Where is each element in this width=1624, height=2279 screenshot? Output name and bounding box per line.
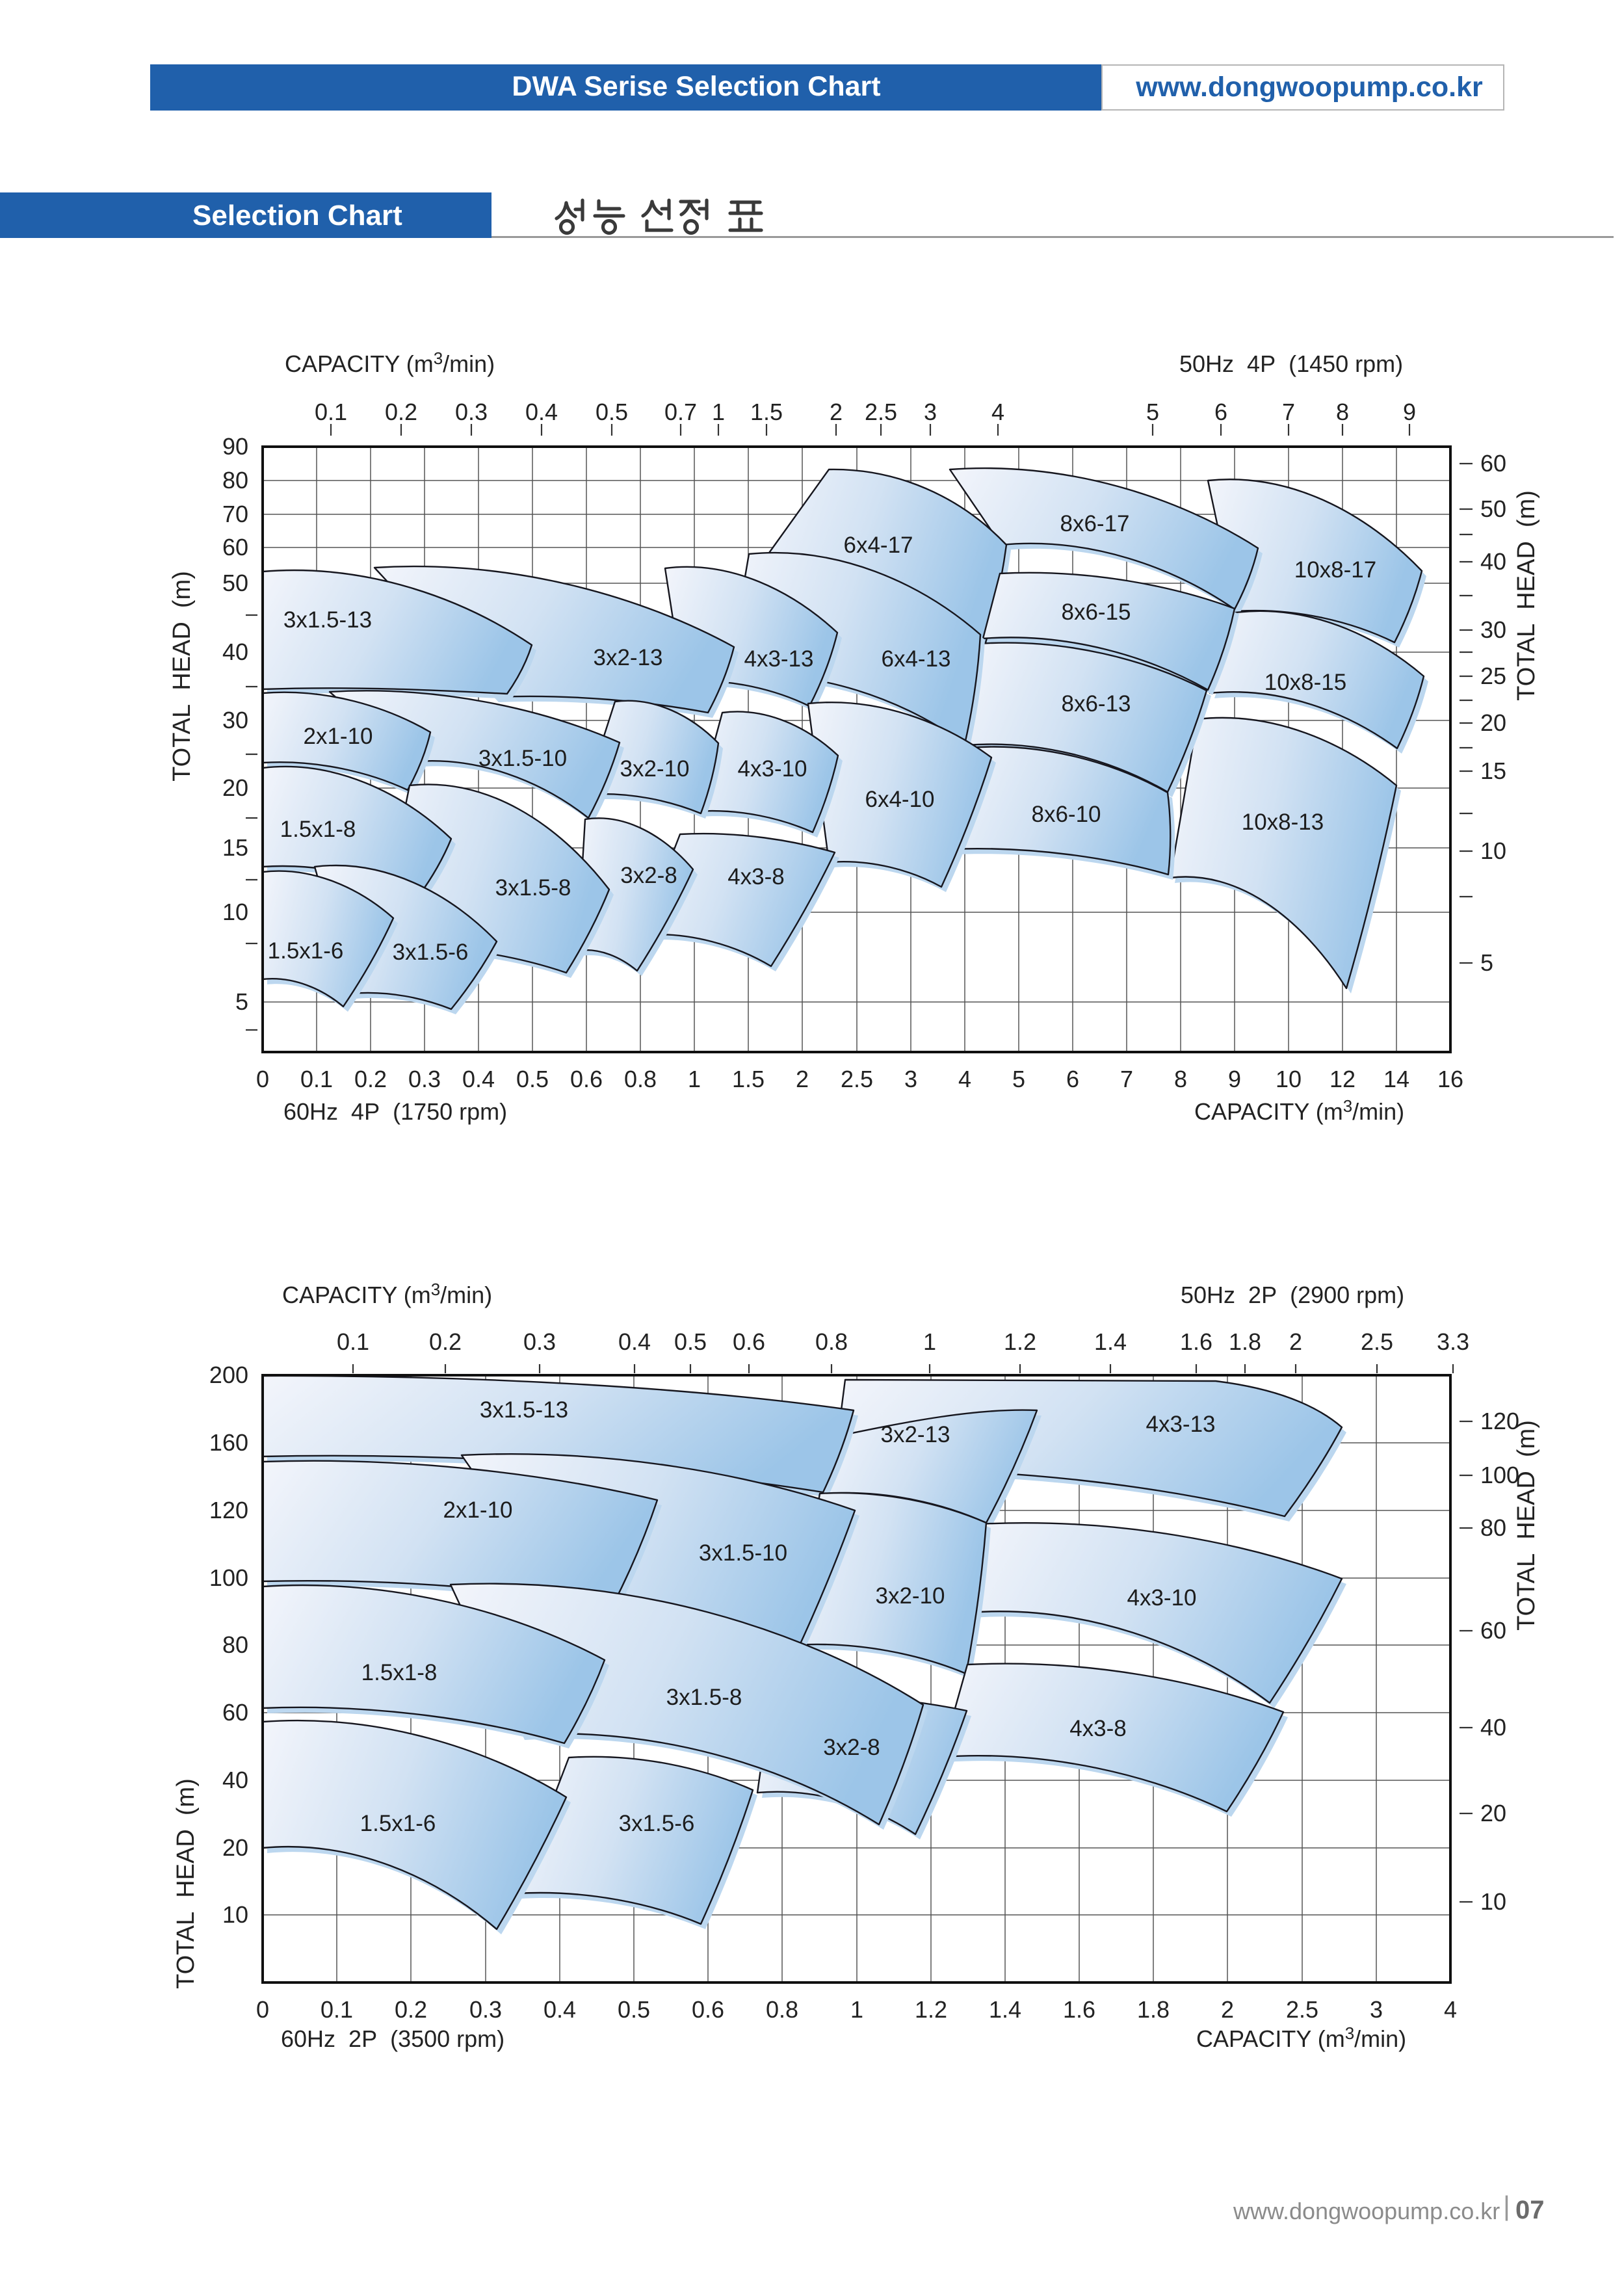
svg-text:160: 160 — [209, 1429, 248, 1456]
svg-text:1.8: 1.8 — [1137, 1996, 1170, 2023]
svg-text:3x2-8: 3x2-8 — [620, 863, 677, 888]
svg-text:1: 1 — [850, 1996, 863, 2023]
svg-text:5: 5 — [1012, 1066, 1025, 1092]
svg-text:1: 1 — [923, 1328, 936, 1355]
svg-text:60: 60 — [1480, 450, 1506, 477]
svg-text:1.5x1-8: 1.5x1-8 — [361, 1660, 438, 1685]
svg-text:2.5: 2.5 — [1286, 1996, 1318, 2023]
svg-text:10: 10 — [1480, 837, 1506, 864]
svg-text:1.8: 1.8 — [1229, 1328, 1261, 1355]
svg-text:2: 2 — [830, 399, 843, 425]
svg-text:3.3: 3.3 — [1437, 1328, 1469, 1355]
svg-text:40: 40 — [222, 1767, 248, 1793]
svg-text:3x1.5-8: 3x1.5-8 — [495, 875, 571, 901]
svg-text:3x1.5-6: 3x1.5-6 — [619, 1811, 695, 1836]
svg-text:3x2-10: 3x2-10 — [875, 1583, 945, 1609]
svg-text:0.5: 0.5 — [618, 1996, 650, 2023]
svg-text:2.5: 2.5 — [841, 1066, 873, 1092]
svg-text:40: 40 — [1480, 548, 1506, 575]
svg-text:1.2: 1.2 — [915, 1996, 947, 2023]
svg-text:0.3: 0.3 — [408, 1066, 441, 1092]
svg-text:40: 40 — [222, 639, 248, 665]
svg-text:90: 90 — [222, 433, 248, 460]
svg-text:60Hz 4P (1750 rpm): 60Hz 4P (1750 rpm) — [283, 1098, 507, 1125]
svg-text:3x2-13: 3x2-13 — [593, 645, 662, 670]
svg-text:3x1.5-6: 3x1.5-6 — [393, 940, 469, 965]
svg-text:2: 2 — [1221, 1996, 1234, 2023]
svg-text:7: 7 — [1282, 399, 1295, 425]
svg-text:8x6-13: 8x6-13 — [1061, 691, 1131, 717]
svg-text:4x3-8: 4x3-8 — [727, 864, 785, 889]
svg-text:0.4: 0.4 — [618, 1328, 651, 1355]
svg-text:1.5x1-6: 1.5x1-6 — [360, 1811, 436, 1836]
svg-text:15: 15 — [1480, 757, 1506, 784]
svg-text:0.1: 0.1 — [300, 1066, 333, 1092]
svg-text:10x8-13: 10x8-13 — [1242, 810, 1324, 835]
svg-text:TOTAL HEAD (m): TOTAL HEAD (m) — [1513, 490, 1540, 701]
svg-text:20: 20 — [1480, 709, 1506, 736]
svg-text:0.5: 0.5 — [516, 1066, 549, 1092]
svg-text:0.2: 0.2 — [385, 399, 417, 425]
svg-text:1: 1 — [688, 1066, 701, 1092]
svg-text:0.4: 0.4 — [525, 399, 558, 425]
svg-text:6x4-10: 6x4-10 — [865, 787, 934, 812]
svg-text:80: 80 — [222, 1631, 248, 1658]
svg-text:10: 10 — [222, 1901, 248, 1928]
svg-text:0.5: 0.5 — [596, 399, 628, 425]
svg-text:10x8-15: 10x8-15 — [1264, 670, 1346, 695]
svg-text:200: 200 — [209, 1362, 248, 1388]
svg-text:50Hz 4P (1450 rpm): 50Hz 4P (1450 rpm) — [1179, 350, 1403, 377]
svg-text:0.1: 0.1 — [337, 1328, 369, 1355]
svg-text:50: 50 — [1480, 495, 1506, 522]
svg-text:10x8-17: 10x8-17 — [1294, 557, 1376, 583]
svg-text:70: 70 — [222, 501, 248, 527]
svg-text:100: 100 — [209, 1564, 248, 1591]
svg-text:0.4: 0.4 — [544, 1996, 576, 2023]
svg-text:0.1: 0.1 — [315, 399, 347, 425]
svg-text:20: 20 — [222, 1834, 248, 1861]
svg-text:4x3-13: 4x3-13 — [1146, 1412, 1215, 1437]
svg-text:16: 16 — [1437, 1066, 1463, 1092]
svg-text:3x2-10: 3x2-10 — [620, 756, 689, 782]
svg-text:1: 1 — [712, 399, 725, 425]
svg-text:0.2: 0.2 — [429, 1328, 462, 1355]
svg-text:1.4: 1.4 — [989, 1996, 1021, 2023]
svg-text:8x6-10: 8x6-10 — [1031, 802, 1101, 827]
svg-text:30: 30 — [1480, 616, 1506, 643]
svg-text:0.2: 0.2 — [395, 1996, 427, 2023]
svg-text:20: 20 — [1480, 1800, 1506, 1826]
svg-text:0.4: 0.4 — [462, 1066, 495, 1092]
svg-text:8: 8 — [1336, 399, 1349, 425]
svg-text:10: 10 — [1480, 1888, 1506, 1915]
svg-text:6x4-17: 6x4-17 — [843, 533, 913, 558]
svg-text:4: 4 — [958, 1066, 971, 1092]
svg-text:TOTAL HEAD (m): TOTAL HEAD (m) — [172, 1778, 200, 1989]
svg-text:3: 3 — [924, 399, 937, 425]
svg-text:3: 3 — [904, 1066, 917, 1092]
svg-text:2.5: 2.5 — [865, 399, 897, 425]
svg-text:3x1.5-10: 3x1.5-10 — [478, 746, 567, 771]
svg-text:8: 8 — [1174, 1066, 1187, 1092]
svg-text:3: 3 — [1370, 1996, 1383, 2023]
svg-text:0.5: 0.5 — [674, 1328, 707, 1355]
svg-text:1.2: 1.2 — [1004, 1328, 1036, 1355]
svg-text:0.6: 0.6 — [570, 1066, 603, 1092]
svg-text:60: 60 — [1480, 1617, 1506, 1644]
svg-text:14: 14 — [1383, 1066, 1409, 1092]
svg-text:1.4: 1.4 — [1094, 1328, 1127, 1355]
svg-text:CAPACITY (m3/min): CAPACITY (m3/min) — [282, 1280, 492, 1308]
svg-text:0.2: 0.2 — [354, 1066, 387, 1092]
svg-text:0.6: 0.6 — [692, 1996, 724, 2023]
svg-text:2: 2 — [1289, 1328, 1302, 1355]
svg-text:60: 60 — [222, 1699, 248, 1726]
svg-text:1.5x1-6: 1.5x1-6 — [268, 938, 344, 964]
svg-text:30: 30 — [222, 707, 248, 733]
svg-text:0: 0 — [256, 1996, 269, 2023]
svg-text:80: 80 — [222, 467, 248, 494]
svg-text:1.5: 1.5 — [732, 1066, 765, 1092]
svg-text:5: 5 — [1146, 399, 1159, 425]
svg-text:CAPACITY (m3/min): CAPACITY (m3/min) — [1196, 2023, 1406, 2052]
svg-text:5: 5 — [1480, 949, 1493, 976]
svg-text:3x1.5-13: 3x1.5-13 — [283, 607, 372, 633]
svg-text:40: 40 — [1480, 1714, 1506, 1741]
svg-text:0.1: 0.1 — [321, 1996, 353, 2023]
svg-text:2x1-10: 2x1-10 — [303, 724, 373, 749]
svg-text:10: 10 — [222, 899, 248, 925]
svg-text:6: 6 — [1066, 1066, 1079, 1092]
svg-text:3x1.5-10: 3x1.5-10 — [699, 1540, 787, 1566]
svg-text:20: 20 — [222, 774, 248, 801]
svg-text:CAPACITY (m3/min): CAPACITY (m3/min) — [1194, 1096, 1404, 1125]
svg-text:5: 5 — [235, 988, 248, 1015]
svg-text:4: 4 — [1444, 1996, 1457, 2023]
svg-text:0.7: 0.7 — [664, 399, 697, 425]
svg-text:0.6: 0.6 — [733, 1328, 765, 1355]
svg-text:0.3: 0.3 — [469, 1996, 502, 2023]
svg-text:2.5: 2.5 — [1361, 1328, 1393, 1355]
svg-text:50: 50 — [222, 570, 248, 596]
svg-text:8x6-15: 8x6-15 — [1061, 599, 1131, 625]
svg-text:15: 15 — [222, 834, 248, 861]
svg-text:4x3-8: 4x3-8 — [1069, 1716, 1127, 1741]
svg-text:0.3: 0.3 — [455, 399, 488, 425]
svg-text:9: 9 — [1403, 399, 1416, 425]
svg-text:7: 7 — [1120, 1066, 1133, 1092]
svg-text:TOTAL HEAD (m): TOTAL HEAD (m) — [168, 571, 196, 782]
svg-text:2: 2 — [796, 1066, 809, 1092]
svg-text:6: 6 — [1214, 399, 1227, 425]
svg-text:2x1-10: 2x1-10 — [443, 1497, 512, 1523]
svg-text:TOTAL HEAD (m): TOTAL HEAD (m) — [1513, 1420, 1540, 1631]
svg-text:0.8: 0.8 — [815, 1328, 848, 1355]
svg-text:4: 4 — [991, 399, 1004, 425]
svg-text:CAPACITY (m3/min): CAPACITY (m3/min) — [285, 349, 495, 377]
svg-text:1.5x1-8: 1.5x1-8 — [280, 817, 356, 842]
svg-text:6x4-13: 6x4-13 — [881, 646, 950, 672]
svg-text:10: 10 — [1276, 1066, 1302, 1092]
svg-text:1.6: 1.6 — [1063, 1996, 1095, 2023]
svg-text:1.5: 1.5 — [750, 399, 783, 425]
svg-text:4x3-10: 4x3-10 — [737, 756, 807, 782]
svg-text:9: 9 — [1228, 1066, 1241, 1092]
svg-text:3x2-13: 3x2-13 — [880, 1422, 950, 1447]
svg-text:4x3-13: 4x3-13 — [744, 646, 813, 672]
svg-text:50Hz 2P (2900 rpm): 50Hz 2P (2900 rpm) — [1181, 1282, 1404, 1308]
svg-text:0.8: 0.8 — [766, 1996, 798, 2023]
svg-text:80: 80 — [1480, 1514, 1506, 1541]
svg-text:25: 25 — [1480, 663, 1506, 689]
svg-text:120: 120 — [209, 1497, 248, 1523]
svg-text:0: 0 — [256, 1066, 269, 1092]
svg-text:60Hz 2P (3500 rpm): 60Hz 2P (3500 rpm) — [281, 2025, 504, 2052]
svg-text:3x1.5-8: 3x1.5-8 — [666, 1685, 742, 1710]
svg-text:8x6-17: 8x6-17 — [1060, 511, 1129, 536]
svg-text:1.6: 1.6 — [1180, 1328, 1212, 1355]
svg-text:3x2-8: 3x2-8 — [823, 1735, 880, 1760]
svg-text:0.3: 0.3 — [523, 1328, 556, 1355]
svg-text:60: 60 — [222, 534, 248, 560]
svg-text:4x3-10: 4x3-10 — [1127, 1585, 1196, 1611]
svg-text:0.8: 0.8 — [624, 1066, 657, 1092]
svg-text:3x1.5-13: 3x1.5-13 — [480, 1397, 568, 1423]
svg-text:12: 12 — [1329, 1066, 1356, 1092]
